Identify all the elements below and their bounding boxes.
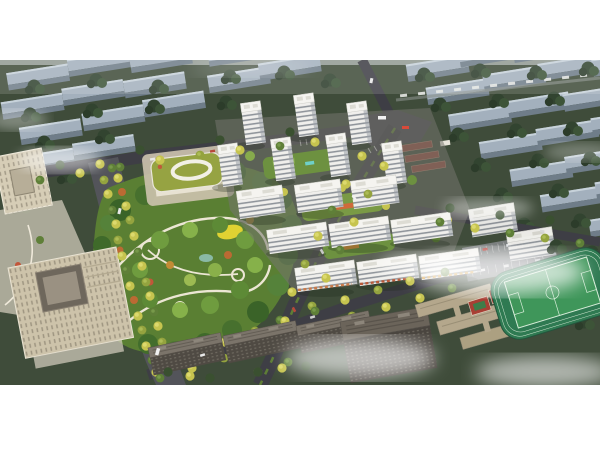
park-pond (199, 254, 213, 262)
haze-top (0, 60, 600, 94)
civic-building (8, 247, 136, 370)
rendering-canvas: Aerial rendering of a residential master… (0, 60, 600, 385)
aerial-rendering-image: Aerial rendering of a residential master… (0, 60, 600, 385)
screenshot-page: Bird's-eye architectural rendering: a ga… (0, 0, 600, 450)
image-caption: Bird's-eye architectural rendering: a ga… (0, 0, 1, 1)
